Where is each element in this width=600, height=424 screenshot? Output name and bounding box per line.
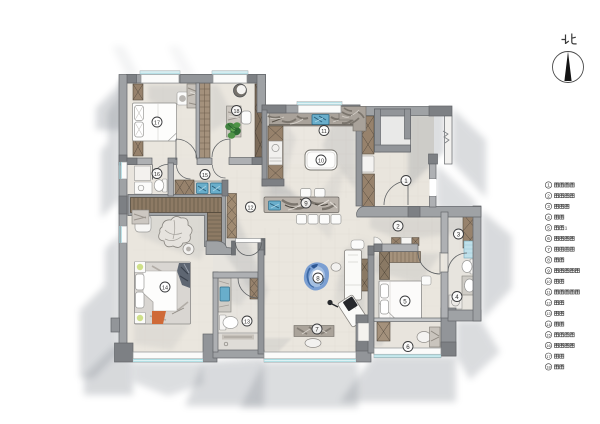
- svg-text:3: 3: [457, 231, 461, 238]
- svg-text:10: 10: [318, 158, 324, 164]
- svg-text:12: 12: [248, 205, 254, 211]
- svg-text:1: 1: [565, 226, 568, 231]
- svg-text:2: 2: [547, 193, 550, 198]
- svg-text:18: 18: [234, 109, 240, 115]
- svg-text:2: 2: [396, 223, 400, 230]
- svg-text:12: 12: [546, 301, 550, 305]
- svg-text:18: 18: [546, 366, 550, 370]
- svg-text:8: 8: [547, 258, 550, 263]
- svg-text:6: 6: [547, 236, 550, 241]
- svg-text:9: 9: [547, 268, 550, 273]
- svg-text:8: 8: [316, 275, 320, 282]
- svg-text:4: 4: [455, 294, 459, 301]
- svg-text:4: 4: [547, 215, 550, 220]
- svg-text:5: 5: [547, 226, 550, 231]
- svg-text:16: 16: [546, 344, 550, 348]
- svg-text:5: 5: [403, 298, 407, 305]
- svg-text:7: 7: [547, 247, 550, 252]
- svg-text:13: 13: [244, 319, 250, 325]
- svg-text:7: 7: [315, 326, 319, 333]
- svg-text:9: 9: [304, 200, 308, 207]
- svg-text:14: 14: [546, 323, 550, 327]
- svg-text:15: 15: [546, 334, 550, 338]
- svg-text:1: 1: [404, 178, 408, 185]
- svg-text:14: 14: [162, 285, 168, 291]
- svg-text:10: 10: [546, 280, 550, 284]
- svg-text:16: 16: [154, 172, 160, 178]
- svg-text:11: 11: [321, 129, 327, 135]
- svg-text:1: 1: [547, 183, 550, 188]
- svg-text:17: 17: [154, 120, 160, 126]
- svg-text:15: 15: [202, 173, 208, 179]
- svg-text:6: 6: [406, 344, 410, 351]
- svg-text:3: 3: [547, 204, 550, 209]
- svg-text:11: 11: [547, 291, 551, 295]
- svg-text:17: 17: [546, 355, 550, 359]
- svg-text:13: 13: [546, 312, 550, 316]
